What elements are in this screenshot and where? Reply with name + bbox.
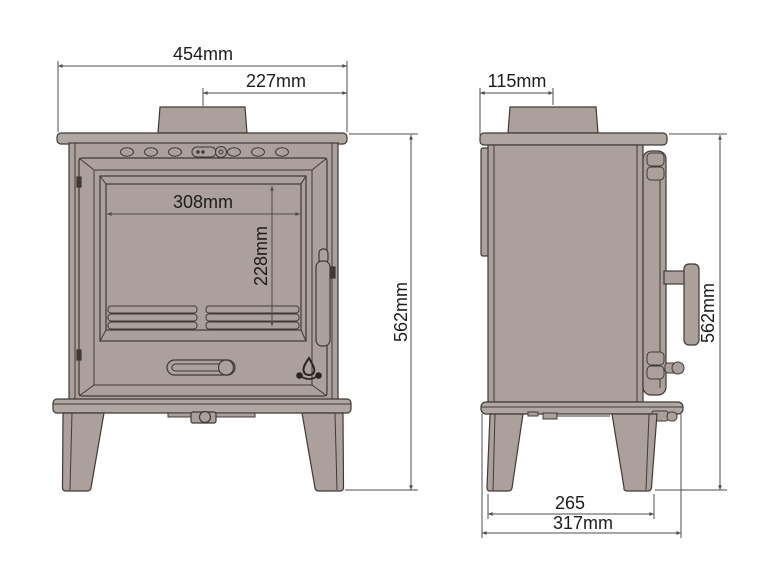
- label-glass-height: 228mm: [251, 226, 271, 286]
- hinge-knuckle-bottom: [647, 352, 664, 365]
- air-vent: [169, 148, 182, 156]
- grate-slat: [206, 314, 299, 321]
- grate-slat: [108, 322, 197, 329]
- door-hinge-mark-bottom: [77, 350, 81, 360]
- label-height-front: 562mm: [391, 282, 411, 342]
- door-hinge-mark-top: [77, 177, 81, 187]
- ash-slider-knob: [219, 360, 234, 375]
- label-leg-clearance: 265: [555, 493, 585, 513]
- hinge-knuckle-top: [647, 167, 664, 180]
- air-vent: [252, 148, 265, 156]
- air-vent: [276, 148, 289, 156]
- base-plate-front: [53, 399, 351, 413]
- leg-side-rear: [612, 414, 657, 491]
- flue-collar-side: [508, 107, 598, 133]
- grate-slat: [108, 314, 197, 321]
- grate-slat: [206, 322, 299, 329]
- leg-front-right: [302, 413, 344, 491]
- slider-dot: [197, 151, 199, 153]
- door-handle-grip: [684, 264, 699, 345]
- air-vent: [145, 148, 158, 156]
- side-view: [480, 107, 699, 491]
- label-height-side: 562mm: [698, 283, 718, 343]
- air-vent: [228, 148, 241, 156]
- leg-front-left: [63, 413, 105, 491]
- stove-dimension-diagram: 454mm 227mm 308mm 228mm 562mm 115mm 562m…: [0, 0, 780, 580]
- air-vent: [121, 148, 134, 156]
- slider-dot: [202, 151, 204, 153]
- top-plate-side: [480, 133, 667, 145]
- top-plate-front: [57, 133, 347, 144]
- under-base-rod-end: [543, 413, 557, 419]
- label-glass-width: 308mm: [173, 192, 233, 212]
- door-latch-mark: [330, 267, 335, 278]
- flue-collar-front: [158, 107, 247, 133]
- latch-bottom-cap: [667, 412, 677, 421]
- door-handle-front: [316, 261, 330, 346]
- label-flue-front: 115mm: [488, 71, 547, 91]
- front-view: [53, 107, 351, 491]
- door-handle-arm: [664, 271, 686, 284]
- hinge-knuckle-top: [647, 153, 664, 166]
- riddle-knob: [200, 412, 211, 423]
- label-depth: 317mm: [553, 513, 613, 533]
- latch-knob: [672, 362, 684, 374]
- hinge-knuckle-bottom: [647, 366, 664, 379]
- drawing-canvas: 454mm 227mm 308mm 228mm 562mm 115mm 562m…: [0, 0, 780, 580]
- stove-body-side: [488, 145, 643, 402]
- air-control-knob-center: [219, 150, 223, 154]
- grate-slat: [108, 306, 197, 313]
- grate-slat: [206, 306, 299, 313]
- label-overall-width: 454mm: [173, 44, 233, 64]
- label-flue-centre: 227mm: [246, 71, 306, 91]
- leg-side-front: [487, 414, 523, 491]
- under-base-tab: [528, 412, 538, 416]
